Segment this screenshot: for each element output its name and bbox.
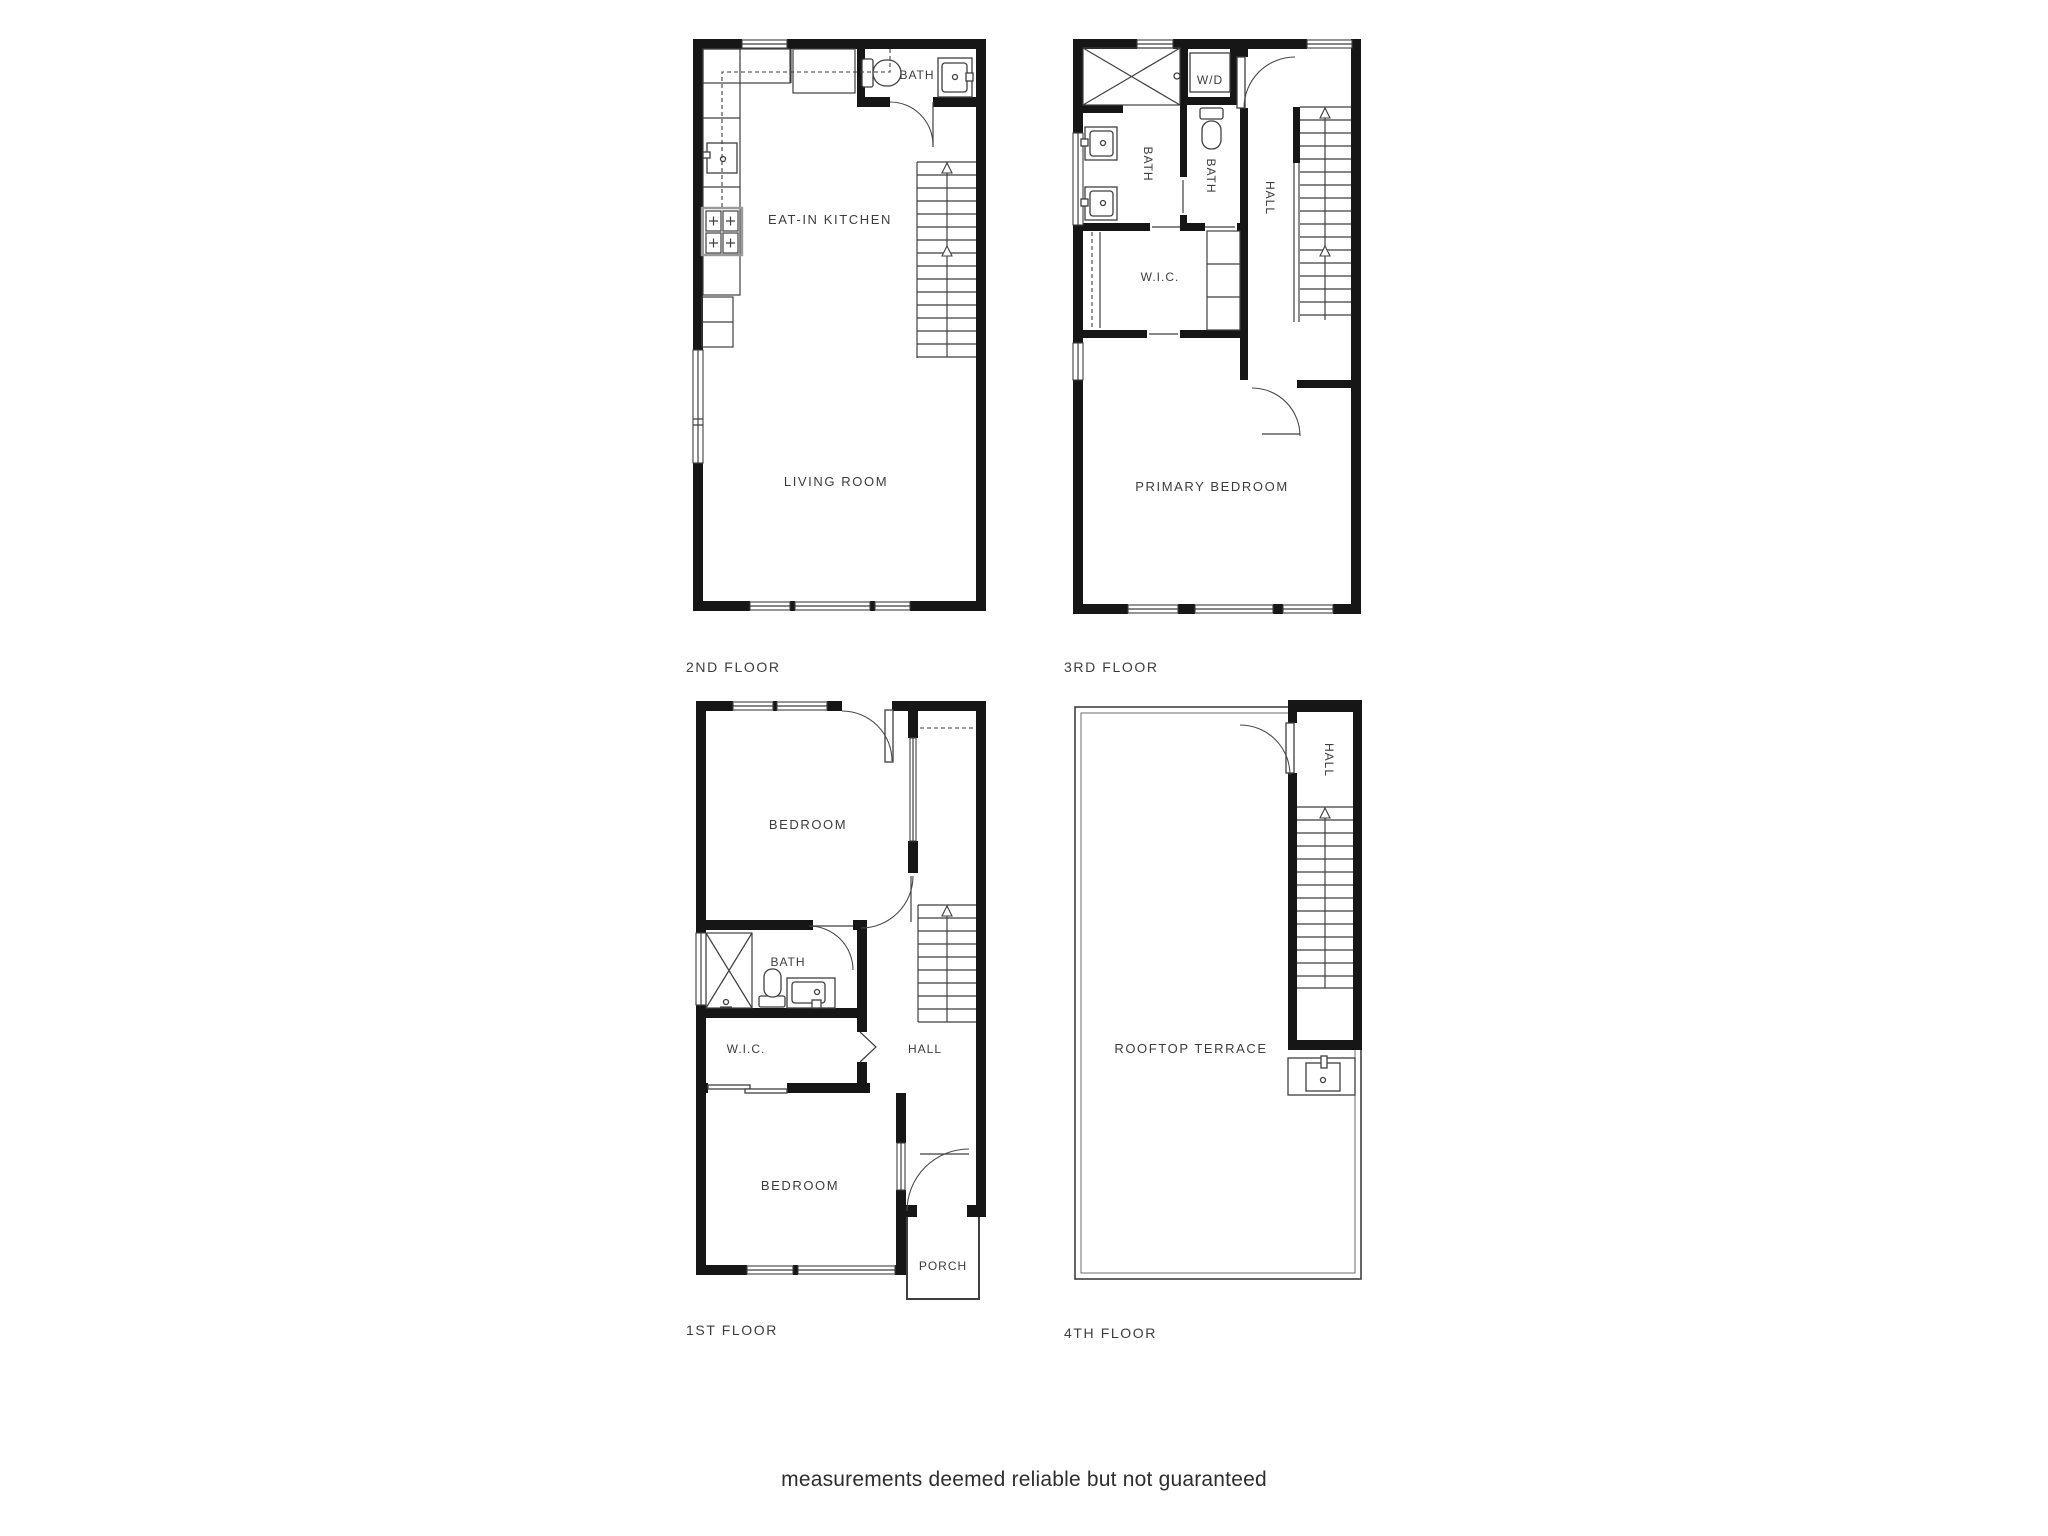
room-label-hall: HALL — [1263, 181, 1277, 215]
door-open-icon — [860, 1032, 876, 1062]
floor-caption-2nd: 2ND FLOOR — [686, 659, 781, 675]
sink-icon — [1081, 127, 1117, 160]
toilet-icon — [759, 969, 785, 1007]
stairs-up-arrow-icon — [1320, 108, 1330, 118]
room-label-bath-left: BATH — [1141, 146, 1155, 181]
porch-outline — [907, 1217, 979, 1299]
sidelight-window — [897, 1143, 905, 1190]
bath-fixtures — [1081, 108, 1235, 334]
window — [742, 40, 787, 48]
window — [733, 702, 773, 710]
sink-icon — [787, 978, 835, 1008]
window — [1283, 605, 1333, 613]
walls — [693, 39, 986, 611]
kitchen-sink-icon — [703, 143, 737, 173]
window — [798, 1266, 895, 1274]
room-label-wic: W.I.C. — [727, 1042, 766, 1056]
disclaimer-text: measurements deemed reliable but not gua… — [0, 1468, 2048, 1492]
door-arc — [890, 102, 933, 147]
floor-plan-sheet: BATH EAT-IN KITCHEN LIVING ROOM — [0, 0, 2048, 1536]
floor-plan-4th-floor: HALL ROOFTOP TERRACE — [1068, 696, 1368, 1286]
room-label-bath-mid: BATH — [1204, 158, 1218, 193]
toilet-icon — [1200, 108, 1223, 149]
glass-panel — [910, 738, 916, 841]
room-label-kitchen: EAT-IN KITCHEN — [768, 212, 892, 227]
room-label-terrace: ROOFTOP TERRACE — [1114, 1041, 1267, 1056]
window — [1128, 605, 1178, 613]
closet-doors — [708, 1085, 787, 1093]
stairs-up-arrow-icon — [1320, 246, 1330, 256]
floor-plan-1st-floor: BEDROOM BATH W.I.C. HALL BEDROOM PORCH — [691, 696, 987, 1308]
window — [750, 602, 790, 610]
room-label-porch: PORCH — [919, 1259, 967, 1273]
window — [875, 602, 910, 610]
room-label-bath: BATH — [770, 955, 805, 969]
room-label-bedroom-top: BEDROOM — [769, 817, 847, 832]
sink-icon — [938, 58, 973, 97]
sink-icon — [1081, 187, 1117, 220]
window — [696, 933, 706, 1005]
front-door-arc — [907, 1149, 969, 1211]
shower-icon — [1083, 48, 1180, 105]
door-arc — [1252, 388, 1300, 436]
door-arc — [809, 926, 853, 970]
stairs — [1294, 107, 1351, 322]
toilet-icon — [862, 59, 901, 87]
floor-caption-3rd: 3RD FLOOR — [1064, 659, 1159, 675]
stairs-up-arrow-icon — [942, 163, 952, 173]
room-label-bath: BATH — [899, 68, 934, 82]
stairs — [918, 728, 976, 1022]
door-arc — [842, 710, 893, 762]
door-arc — [1237, 57, 1295, 108]
room-label-living: LIVING ROOM — [784, 474, 888, 489]
window — [1307, 40, 1352, 48]
door-arc — [861, 876, 913, 928]
stove-icon — [702, 208, 742, 255]
window — [1073, 133, 1083, 225]
room-label-bedroom-bottom: BEDROOM — [761, 1178, 839, 1193]
room-label-hall: HALL — [908, 1042, 942, 1056]
floor-caption-1st: 1ST FLOOR — [686, 1322, 778, 1338]
room-label-wic: W.I.C. — [1141, 270, 1180, 284]
room-label-wd: W/D — [1197, 73, 1223, 87]
stairs — [917, 162, 976, 358]
window — [777, 702, 827, 710]
window — [1137, 40, 1173, 48]
stairs-up-arrow-icon — [942, 246, 952, 256]
floor-caption-4th: 4TH FLOOR — [1064, 1325, 1157, 1341]
floor-plan-3rd-floor: W/D BATH BATH — [1068, 34, 1366, 618]
window — [693, 350, 703, 463]
stairs-up-arrow-icon — [942, 906, 952, 916]
room-label-hall: HALL — [1322, 743, 1336, 777]
room-label-primary-bedroom: PRIMARY BEDROOM — [1135, 479, 1289, 494]
outdoor-sink — [1288, 1056, 1355, 1095]
washer-dryer: W/D — [1190, 53, 1230, 92]
window — [1073, 343, 1083, 380]
door-arc — [1240, 723, 1294, 775]
shower-icon — [706, 933, 752, 1008]
window — [1195, 605, 1273, 613]
window — [795, 602, 870, 610]
window — [747, 1266, 793, 1274]
windows — [693, 40, 910, 610]
floor-plan-2nd-floor: BATH EAT-IN KITCHEN LIVING ROOM — [688, 34, 990, 616]
